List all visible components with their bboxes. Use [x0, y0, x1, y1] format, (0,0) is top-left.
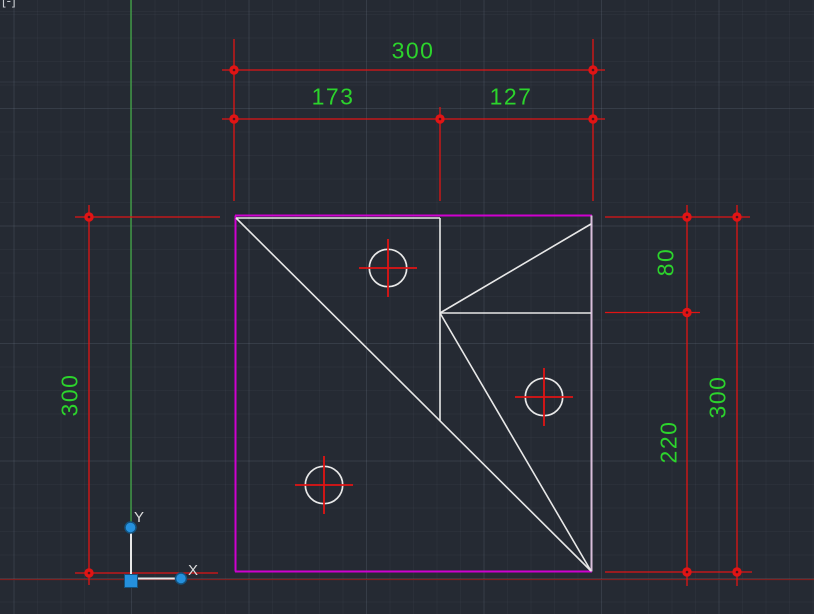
dimension-arrow-dot-center — [686, 216, 689, 219]
dimension-arrow-dot-center — [736, 216, 739, 219]
dim-label-right-upper[interactable]: 80 — [655, 248, 678, 277]
dimension-arrow-dot-center — [592, 69, 595, 72]
ucs-x-label: X — [188, 562, 198, 579]
ucs-y-label: Y — [134, 509, 144, 526]
plate-line[interactable] — [236, 218, 591, 571]
plate-line[interactable] — [440, 313, 591, 571]
dim-label-top-width[interactable]: 300 — [392, 40, 435, 63]
dimension-arrow-dot-center — [736, 571, 739, 574]
dim-label-top-seg-left[interactable]: 173 — [312, 86, 355, 109]
dimension-arrow-dot-center — [233, 118, 236, 121]
dim-label-right-lower[interactable]: 220 — [658, 421, 681, 464]
dimension-arrow-dot-center — [88, 216, 91, 219]
dimension-arrow-dot-center — [88, 572, 91, 575]
viewport-controls-fragment[interactable]: [-] — [2, 0, 17, 8]
plate-line[interactable] — [440, 224, 591, 313]
dimension-arrow-dot-center — [233, 69, 236, 72]
dim-label-right-total[interactable]: 300 — [707, 376, 730, 419]
dim-label-top-seg-right[interactable]: 127 — [490, 86, 533, 109]
dimension-arrow-dot-center — [439, 118, 442, 121]
dim-label-left-total[interactable]: 300 — [59, 374, 82, 417]
dimension-arrow-dot-center — [592, 118, 595, 121]
dimension-arrow-dot-center — [686, 311, 689, 314]
ucs-axis-handle[interactable] — [176, 573, 187, 584]
drawing-canvas[interactable]: Y X [-] 300 173 127 300 80 220 300 — [0, 0, 814, 614]
cad-geometry-layer: Y X — [0, 0, 814, 614]
ucs-origin-handle[interactable] — [125, 575, 138, 588]
dimension-arrow-dot-center — [686, 571, 689, 574]
